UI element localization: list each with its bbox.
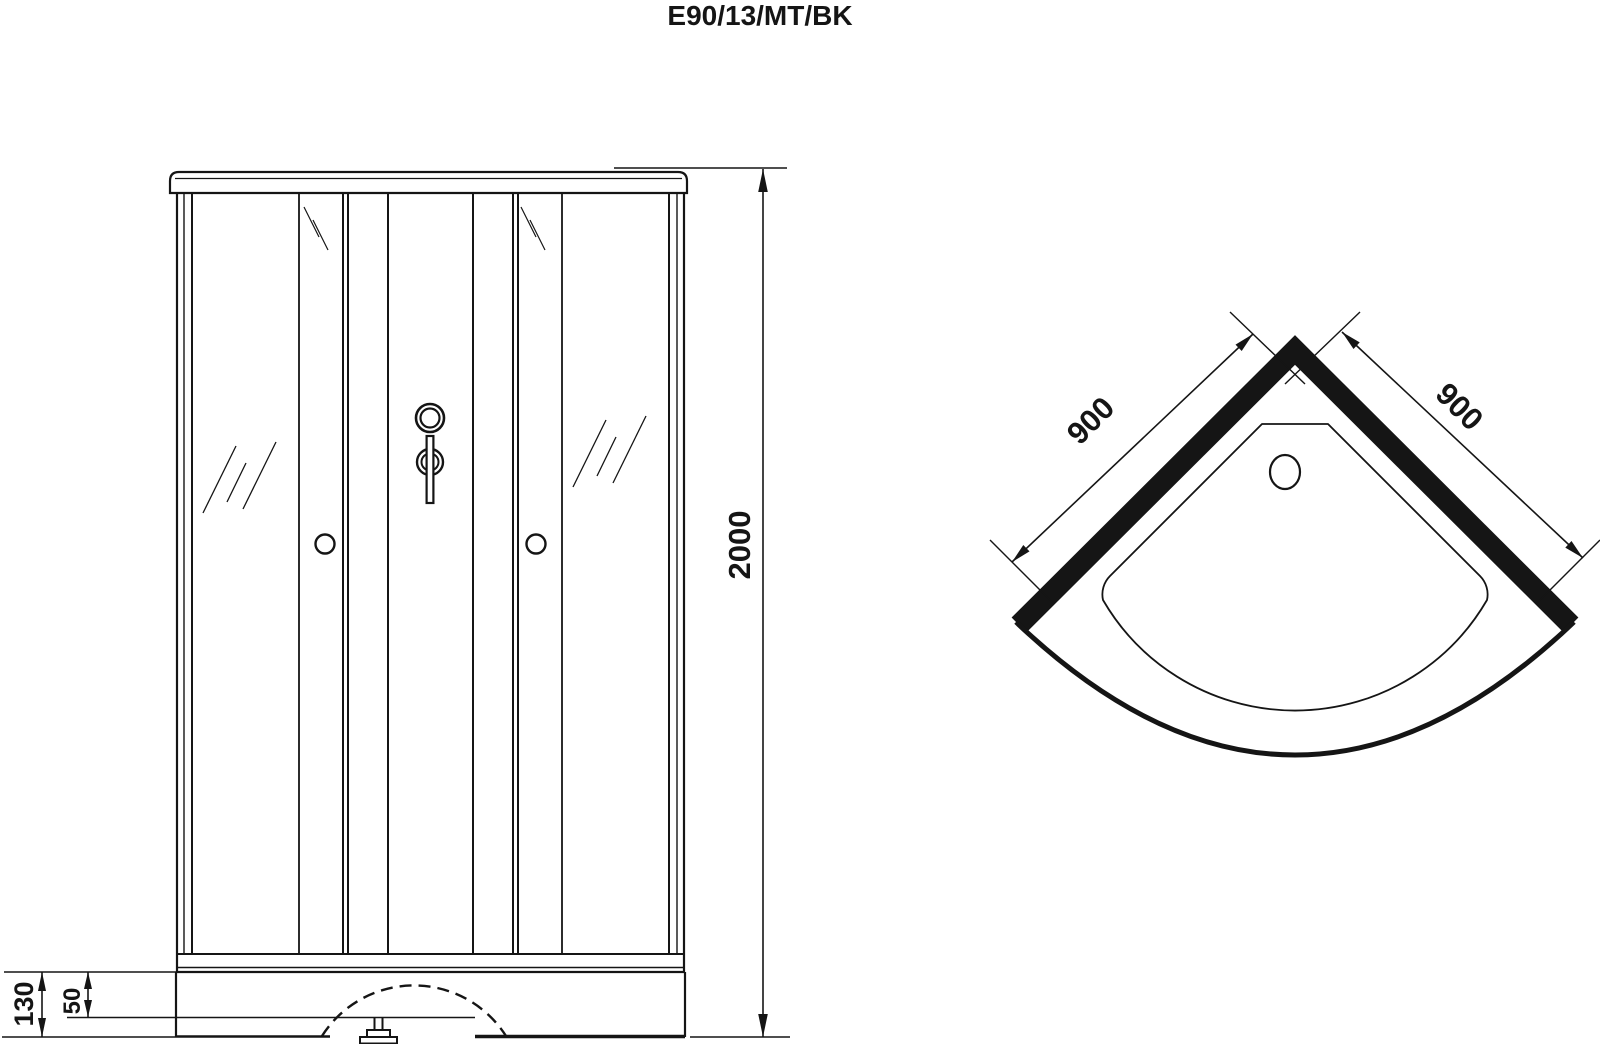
siphon-access-dashed-arch xyxy=(322,985,506,1036)
shower-mixer-detail xyxy=(416,404,444,503)
front-view xyxy=(67,172,687,1044)
canopy-outline xyxy=(170,172,687,193)
tray-outline xyxy=(1102,424,1487,711)
drain-hole-icon xyxy=(1270,455,1300,489)
door-knob-left-icon xyxy=(316,535,335,554)
plan-view: 900 900 xyxy=(990,312,1600,755)
hatch-line xyxy=(530,220,545,250)
arrowhead-up xyxy=(38,972,46,991)
hatch-line xyxy=(597,437,616,476)
dim-base-height-label: 130 xyxy=(9,981,39,1026)
dimension-line-left-side xyxy=(1012,334,1253,562)
technical-drawing-page: E90/13/MT/BK xyxy=(0,0,1600,1044)
dim-height-label: 2000 xyxy=(722,511,757,580)
hatch-line xyxy=(243,442,276,509)
corner-wall-panels xyxy=(1019,350,1571,625)
extension-line xyxy=(1536,540,1600,604)
shower-cabin-drawing: E90/13/MT/BK xyxy=(0,0,1600,1044)
hatch-line xyxy=(613,416,646,483)
product-code-title: E90/13/MT/BK xyxy=(667,0,852,31)
arrowhead-down xyxy=(758,1014,768,1037)
dim-tray-rim-label: 50 xyxy=(59,988,86,1015)
waste-pipe-foot xyxy=(360,1037,397,1044)
arrowhead-up xyxy=(758,169,768,192)
base-dimensions: 130 50 xyxy=(2,972,176,1037)
hatch-line xyxy=(227,463,246,502)
hatch-line xyxy=(304,207,319,237)
hatch-line xyxy=(521,207,536,237)
waste-pipe xyxy=(360,1018,397,1044)
door-knob-right-icon xyxy=(527,535,546,554)
hatch-line xyxy=(203,446,236,513)
arrowhead-up xyxy=(84,972,92,989)
tray-base xyxy=(67,972,685,1044)
height-dimension: 2000 xyxy=(614,168,790,1037)
waste-pipe-flange xyxy=(367,1030,390,1037)
curved-glass-front xyxy=(1016,622,1574,755)
dim-left-side-label: 900 xyxy=(1060,390,1121,451)
hatch-line xyxy=(313,220,328,250)
hatch-line xyxy=(573,420,606,487)
mixer-lever xyxy=(427,436,434,503)
dim-right-side-label: 900 xyxy=(1429,376,1490,437)
shower-head-outlet-inner xyxy=(421,409,440,428)
arrowhead-down xyxy=(38,1018,46,1037)
